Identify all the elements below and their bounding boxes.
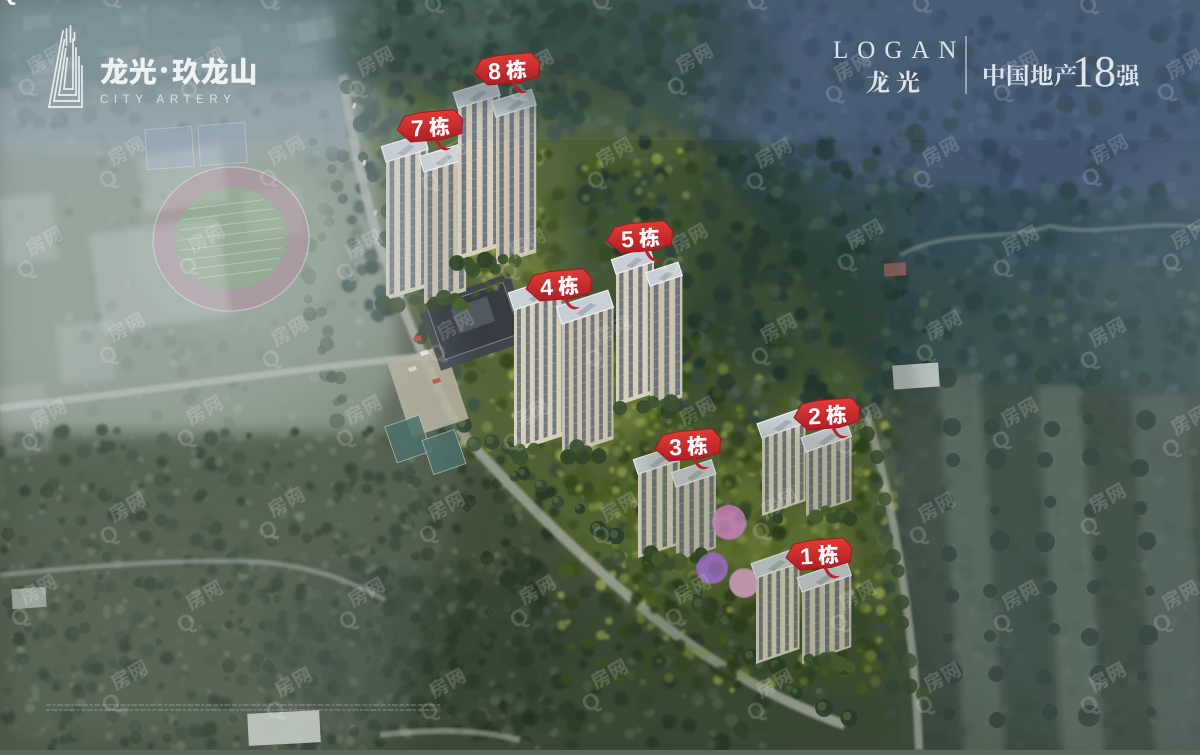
svg-text:2: 2 [807,403,821,430]
svg-text:CITY ARTERY: CITY ARTERY [100,94,236,106]
svg-text:1: 1 [799,543,813,570]
svg-text:5: 5 [620,226,634,253]
svg-text:LOGAN: LOGAN [833,37,966,64]
svg-text:7: 7 [410,115,424,142]
svg-text:4: 4 [539,274,553,301]
svg-text:3: 3 [668,434,682,461]
svg-text:Q: Q [0,0,18,5]
svg-text:18: 18 [1072,47,1116,96]
svg-text:8: 8 [487,58,501,85]
